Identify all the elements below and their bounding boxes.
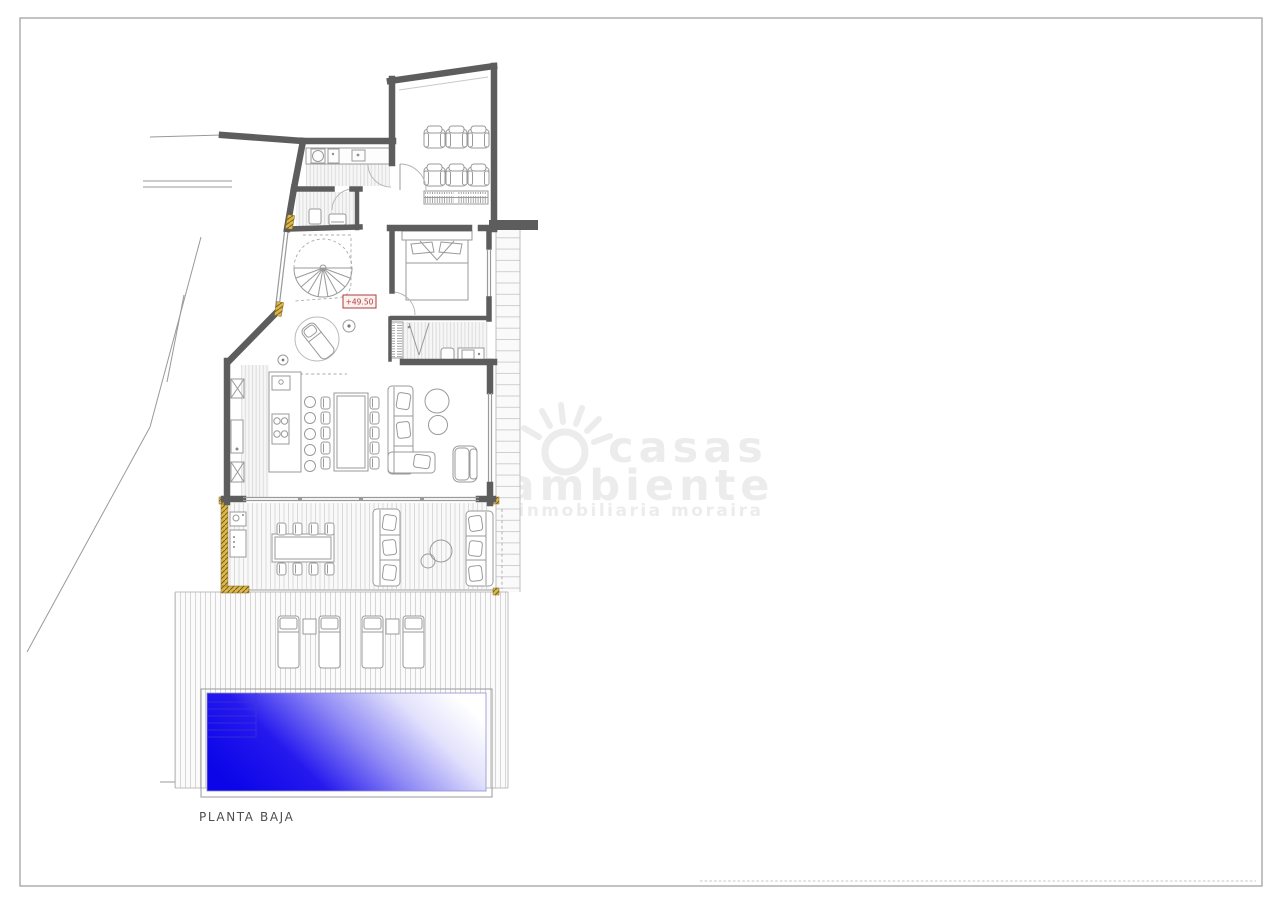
swimming-pool <box>201 689 492 797</box>
outdoor-sofa <box>466 511 493 586</box>
dining-area <box>321 393 379 471</box>
kitchen <box>241 365 316 498</box>
sofa <box>388 386 435 474</box>
outdoor-sofa <box>373 509 400 586</box>
bathroom <box>391 322 488 361</box>
sun-lounger <box>278 616 299 668</box>
elevation-value: +49.50 <box>346 298 374 307</box>
toilet-sink <box>309 209 321 224</box>
pool-water <box>207 693 486 791</box>
spiral-staircase <box>272 235 352 374</box>
site-boundary-lines <box>27 135 232 652</box>
armchair <box>453 446 477 482</box>
bed <box>402 231 472 300</box>
sun-lounger <box>362 616 383 668</box>
kitchen-island <box>269 372 301 472</box>
door-arc <box>400 164 426 190</box>
side-table <box>386 619 399 634</box>
wardrobe <box>424 191 488 204</box>
cinema-room <box>399 77 489 204</box>
chaise-lounge <box>300 321 336 361</box>
dining-table <box>334 393 368 471</box>
cinema-armchair <box>424 126 489 186</box>
coffee-table <box>429 416 448 435</box>
bar-stool <box>305 397 316 472</box>
entry-area <box>278 317 355 365</box>
elevation-label: +49.50 <box>343 295 376 308</box>
terrace-door <box>231 420 243 453</box>
wc <box>329 214 346 225</box>
coffee-table <box>425 389 449 413</box>
floor-plan-drawing: casas ambiente inmobiliaria moraira <box>0 0 1280 906</box>
laundry-room <box>306 148 391 187</box>
sun-lounger <box>319 616 340 668</box>
watermark-tagline: inmobiliaria moraira <box>519 501 764 521</box>
side-table <box>303 619 316 634</box>
terrace <box>219 497 502 595</box>
toilet-room <box>296 189 354 228</box>
plan-title: PLANTA BAJA <box>199 810 294 824</box>
bedroom <box>392 231 472 315</box>
side-walkway <box>489 220 538 592</box>
living-area <box>388 386 477 482</box>
terrace-wood-wall <box>221 586 249 593</box>
sun-lounger <box>403 616 424 668</box>
watermark: casas ambiente inmobiliaria moraira <box>506 405 775 521</box>
terrace-wood-wall <box>221 504 228 586</box>
plan-sheet: casas ambiente inmobiliaria moraira <box>0 0 1280 906</box>
outdoor-kitchen <box>230 512 246 557</box>
